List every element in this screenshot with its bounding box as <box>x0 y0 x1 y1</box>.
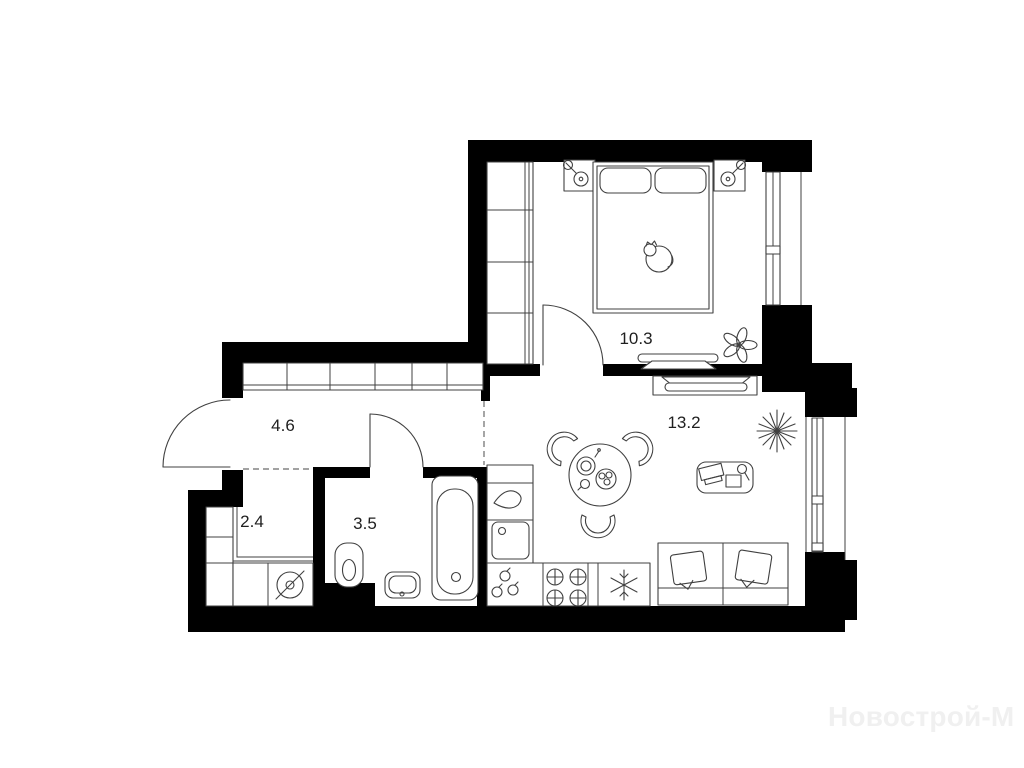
room-hallway <box>243 363 483 390</box>
room-bathroom <box>335 476 478 600</box>
tv-console <box>653 376 757 395</box>
kitchen-counter-row <box>487 563 650 606</box>
floor-plan-canvas: 10.3 4.6 2.4 3.5 13.2 Новострой-М <box>0 0 1024 768</box>
plant-icon <box>757 410 797 452</box>
hallway-wardrobe <box>243 363 483 390</box>
room-living-kitchen <box>487 376 797 606</box>
pillow <box>600 168 651 193</box>
toilet-icon <box>335 543 363 587</box>
storage-area-label: 2.4 <box>240 512 264 531</box>
kitchen-counter-column <box>487 465 533 563</box>
kitchen-sink-icon <box>492 522 529 559</box>
entrance-door <box>163 400 230 467</box>
zone-boundary-dashed <box>243 401 484 469</box>
bathroom-door <box>370 414 423 467</box>
nightstand-right <box>714 160 746 191</box>
desk-rug <box>697 462 753 493</box>
double-bed <box>593 162 713 313</box>
living-room-window <box>806 417 845 560</box>
bedroom-wardrobe <box>487 162 533 364</box>
bedroom-door <box>543 305 603 365</box>
bedroom-window <box>766 172 801 305</box>
plant-icon <box>722 326 757 363</box>
bedroom-tv <box>638 354 718 369</box>
hallway-area-label: 4.6 <box>271 416 295 435</box>
floor-plan-drawing: 10.3 4.6 2.4 3.5 13.2 <box>0 0 1024 768</box>
developer-watermark: Новострой-М <box>828 701 1024 733</box>
dining-table <box>569 444 631 506</box>
dining-table-set <box>541 426 659 538</box>
bathtub-icon <box>432 476 478 600</box>
bathroom-area-label: 3.5 <box>353 514 377 533</box>
sofa <box>658 543 788 605</box>
living-kitchen-area-label: 13.2 <box>667 413 700 432</box>
bathroom-sink-icon <box>385 572 420 598</box>
pillow <box>655 168 706 193</box>
bedroom-area-label: 10.3 <box>619 329 652 348</box>
chair <box>581 515 615 538</box>
nightstand-left <box>564 160 596 191</box>
